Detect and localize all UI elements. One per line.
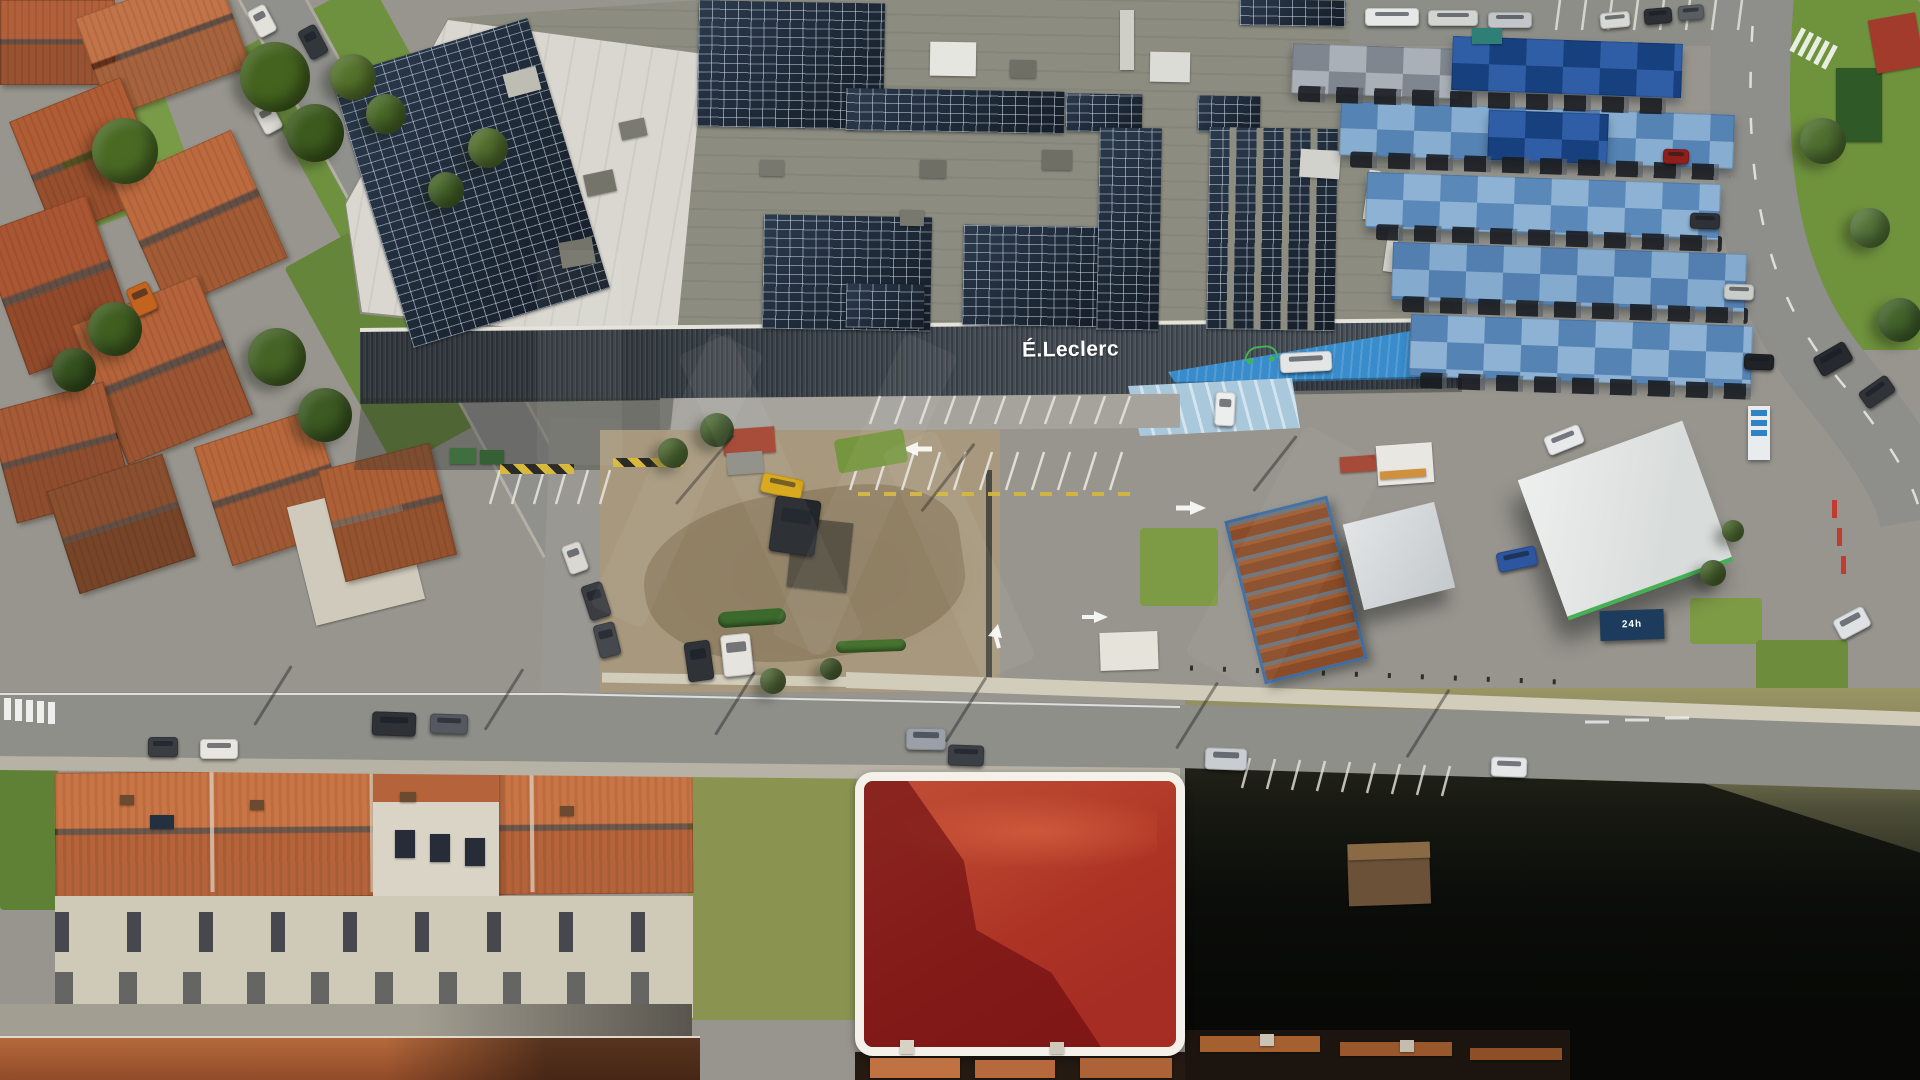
aerial-photo-stage: É.Leclerc <box>0 0 1920 1080</box>
watermark-bar <box>1184 424 1386 696</box>
watermark-bar <box>882 429 1037 681</box>
watermark-overlay <box>0 0 1920 1080</box>
watermark-bar <box>537 250 622 465</box>
